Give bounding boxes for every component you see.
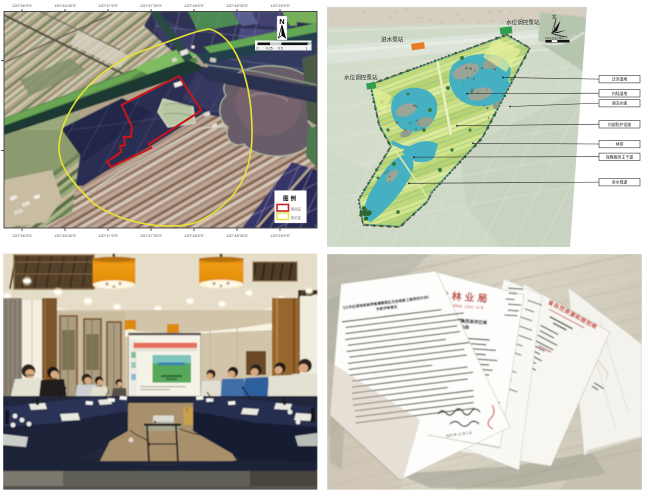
svg-text:北: 北 [552, 14, 557, 21]
svg-text:进水泵站: 进水泵站 [381, 36, 404, 44]
svg-text:0 0.2 0.4 0.8km: 0 0.2 0.4 0.8km [545, 36, 565, 40]
svg-text:120°47'30"E: 120°47'30"E [140, 3, 162, 8]
svg-text:1: 1 [306, 47, 308, 51]
svg-text:亲水栈道: 亲水栈道 [612, 180, 628, 185]
svg-text:林带: 林带 [616, 142, 624, 147]
svg-text:120°47'0"E: 120°47'0"E [98, 233, 118, 238]
svg-text:项目区: 项目区 [291, 207, 302, 212]
svg-text:120°48'30"E: 120°48'30"E [226, 233, 248, 238]
svg-text:0: 0 [257, 47, 259, 51]
svg-text:120°48'0"E: 120°48'0"E [184, 3, 204, 8]
svg-text:120°46'0"E: 120°46'0"E [12, 233, 32, 238]
svg-text:120°48'0"E: 120°48'0"E [184, 233, 204, 238]
svg-text:120°46'30"E: 120°46'30"E [54, 233, 76, 238]
svg-text:水位调控泵站: 水位调控泵站 [506, 19, 540, 27]
svg-text:km: km [308, 42, 313, 46]
svg-text:120°46'30"E: 120°46'30"E [54, 3, 76, 8]
svg-text:内部防护设施: 内部防护设施 [608, 122, 631, 127]
svg-text:泛洪湿地: 泛洪湿地 [612, 77, 628, 82]
svg-text:保障服务主干道: 保障服务主干道 [606, 154, 633, 159]
svg-text:评价区: 评价区 [291, 215, 302, 220]
svg-text:120°48'30"E: 120°48'30"E [226, 3, 248, 8]
svg-text:内陆湿地: 内陆湿地 [612, 91, 628, 96]
svg-text:120°46'0"E: 120°46'0"E [12, 3, 32, 8]
svg-text:120°47'0"E: 120°47'0"E [98, 3, 118, 8]
svg-text:120°49'0"E: 120°49'0"E [270, 3, 290, 8]
svg-text:0.5: 0.5 [278, 47, 283, 51]
svg-text:120°47'30"E: 120°47'30"E [140, 233, 162, 238]
svg-text:120°49'0"E: 120°49'0"E [270, 233, 290, 238]
svg-text:图例: 图例 [283, 195, 298, 203]
svg-text:水位调控泵站: 水位调控泵站 [344, 74, 378, 82]
svg-text:0.25: 0.25 [266, 47, 273, 51]
svg-text:湖泊水面: 湖泊水面 [612, 101, 628, 106]
svg-text:N: N [279, 17, 284, 26]
